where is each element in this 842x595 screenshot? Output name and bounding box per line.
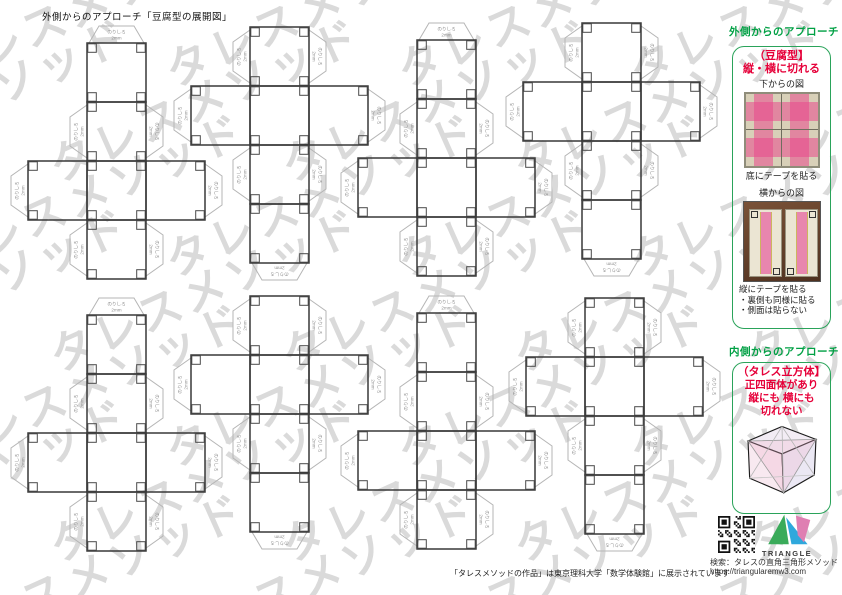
svg-text:2mm: 2mm xyxy=(111,307,121,312)
triangle-logo: TRIANGLE xyxy=(757,512,817,558)
cube-nets-canvas: のりしろ2mmのりしろ2mmのりしろ2mmのりしろ2mmのりしろ2mmのりしろ2… xyxy=(0,0,842,595)
svg-text:2mm: 2mm xyxy=(479,241,484,251)
photo-bottom-view xyxy=(744,92,820,168)
svg-text:2mm: 2mm xyxy=(274,535,284,540)
svg-text:2mm: 2mm xyxy=(20,185,25,195)
svg-text:2mm: 2mm xyxy=(312,51,317,61)
photo-divider xyxy=(746,129,818,130)
cube-net: のりしろ2mmのりしろ2mmのりしろ2mmのりしろ2mmのりしろ2mmのりしろ2… xyxy=(506,295,723,554)
tofu-type-box: （豆腐型】 縦・横に切れる 下からの図 底にテープを貼る 横からの図 xyxy=(732,46,831,329)
svg-text:2mm: 2mm xyxy=(647,322,652,332)
thales-cube-line: 切れない xyxy=(733,405,830,418)
tape-stripe xyxy=(760,212,772,274)
sidebar: 外側からのアプローチ （豆腐型】 縦・横に切れる 下からの図 底にテープを貼る … xyxy=(727,0,842,595)
svg-text:2mm: 2mm xyxy=(515,106,520,116)
svg-text:2mm: 2mm xyxy=(149,126,154,136)
thales-cube-line: 縦にも 横にも xyxy=(733,392,830,405)
worksheet-page: タレスメソッドタレスメソッドタレスメソッドタレスメソッドタレスメソッドタレスメソ… xyxy=(0,0,842,595)
taped-box xyxy=(749,209,782,277)
thales-cube-line: 正四面体があり xyxy=(733,379,830,392)
tofu-type-subtitle: 縦・横に切れる xyxy=(733,63,830,76)
svg-text:2mm: 2mm xyxy=(441,305,451,310)
cube-net: のりしろ2mmのりしろ2mmのりしろ2mmのりしろ2mmのりしろ2mmのりしろ2… xyxy=(503,20,720,279)
svg-text:2mm: 2mm xyxy=(518,381,523,391)
svg-text:2mm: 2mm xyxy=(79,244,84,254)
corner-mark xyxy=(751,211,758,218)
side-view-caption: 横からの図 xyxy=(733,188,830,199)
svg-text:2mm: 2mm xyxy=(350,455,355,465)
svg-text:2mm: 2mm xyxy=(312,169,317,179)
svg-text:2mm: 2mm xyxy=(79,126,84,136)
svg-text:2mm: 2mm xyxy=(242,51,247,61)
svg-text:2mm: 2mm xyxy=(409,123,414,133)
tape-strip xyxy=(746,138,818,157)
svg-text:2mm: 2mm xyxy=(706,381,711,391)
svg-text:2mm: 2mm xyxy=(647,440,652,450)
svg-text:2mm: 2mm xyxy=(274,266,284,271)
svg-text:2mm: 2mm xyxy=(20,457,25,467)
tape-note-line: 縦にテープを貼る xyxy=(739,284,830,295)
svg-text:2mm: 2mm xyxy=(79,516,84,526)
svg-text:2mm: 2mm xyxy=(242,169,247,179)
svg-text:2mm: 2mm xyxy=(79,398,84,408)
svg-text:2mm: 2mm xyxy=(606,262,616,267)
svg-text:2mm: 2mm xyxy=(479,514,484,524)
svg-text:2mm: 2mm xyxy=(183,379,188,389)
svg-text:2mm: 2mm xyxy=(149,516,154,526)
svg-text:2mm: 2mm xyxy=(644,165,649,175)
triangle-logo-icon xyxy=(758,512,816,546)
outside-approach-heading: 外側からのアプローチ xyxy=(729,24,839,39)
svg-text:2mm: 2mm xyxy=(577,440,582,450)
tape-stripe xyxy=(796,212,808,274)
svg-text:2mm: 2mm xyxy=(574,47,579,57)
bottom-view-note: 底にテープを貼る xyxy=(733,171,830,182)
thales-cube-figure xyxy=(738,420,826,496)
svg-text:2mm: 2mm xyxy=(242,320,247,330)
svg-text:2mm: 2mm xyxy=(409,514,414,524)
bottom-view-caption: 下からの図 xyxy=(733,79,830,90)
svg-text:2mm: 2mm xyxy=(479,396,484,406)
tape-note-line: ・裏側も同様に貼る xyxy=(739,295,830,306)
svg-text:2mm: 2mm xyxy=(183,110,188,120)
corner-mark xyxy=(809,211,816,218)
taped-box xyxy=(785,209,818,277)
svg-text:2mm: 2mm xyxy=(609,537,619,542)
svg-text:2mm: 2mm xyxy=(111,35,121,40)
svg-text:2mm: 2mm xyxy=(409,241,414,251)
corner-mark xyxy=(787,268,794,275)
exhibition-note: 「タレスメソッドの作品」は東京理科大学「数学体験館」に展示されています xyxy=(450,568,730,579)
svg-text:2mm: 2mm xyxy=(574,165,579,175)
svg-text:2mm: 2mm xyxy=(312,320,317,330)
svg-text:2mm: 2mm xyxy=(242,438,247,448)
svg-text:2mm: 2mm xyxy=(149,398,154,408)
svg-text:2mm: 2mm xyxy=(312,438,317,448)
svg-text:2mm: 2mm xyxy=(441,32,451,37)
tofu-type-title: （豆腐型】 xyxy=(733,50,830,63)
svg-text:2mm: 2mm xyxy=(479,123,484,133)
svg-text:2mm: 2mm xyxy=(577,322,582,332)
svg-text:2mm: 2mm xyxy=(409,396,414,406)
photo-side-view xyxy=(743,201,821,282)
svg-text:2mm: 2mm xyxy=(350,182,355,192)
svg-text:2mm: 2mm xyxy=(149,244,154,254)
inside-approach-heading: 内側からのアプローチ xyxy=(729,344,839,359)
page-title: 外側からのアプローチ「豆腐型の展開図」 xyxy=(42,9,232,23)
tape-note-line: ・側面は貼らない xyxy=(739,305,830,316)
corner-mark xyxy=(773,268,780,275)
footer-right: TRIANGLE 検索：タレスの直角三角形メソッド https://triang… xyxy=(715,512,842,592)
thales-cube-title: （タレス立方体】 xyxy=(733,366,830,379)
photo-divider xyxy=(781,94,782,166)
qr-code xyxy=(718,516,755,553)
svg-text:2mm: 2mm xyxy=(644,47,649,57)
thales-cube-box: （タレス立方体】 正四面体があり 縦にも 横にも 切れない xyxy=(732,362,831,514)
tape-strip xyxy=(746,102,818,121)
svg-text:2mm: 2mm xyxy=(703,106,708,116)
